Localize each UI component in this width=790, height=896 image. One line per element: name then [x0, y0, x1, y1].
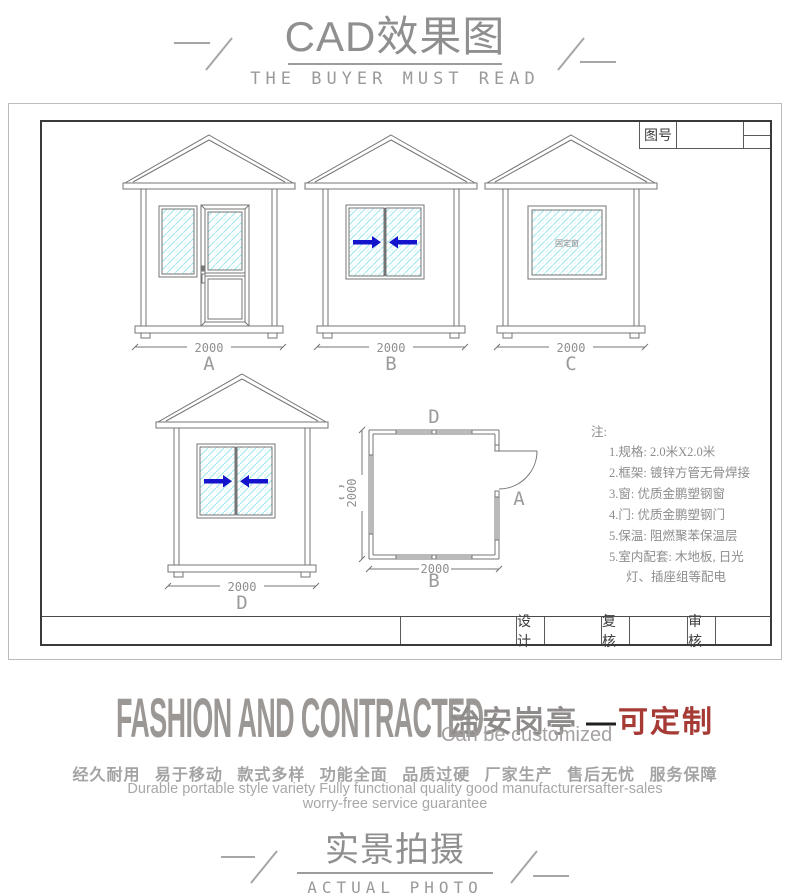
note-item: 4.门: 优质金鹏塑钢门: [589, 505, 769, 526]
title-block: 设计 复核 审核: [42, 616, 770, 644]
drawing-number-value-cell: [677, 122, 744, 148]
plan-left-label: C: [339, 482, 346, 504]
fixed-window-label: 固定窗: [555, 238, 579, 248]
right-slash-decor-icon: [507, 843, 569, 887]
features-en-line1: Durable portable style variety Fully fun…: [0, 781, 790, 797]
header-title: CAD效果图: [285, 15, 506, 59]
footer-banner: 实景拍摄 ACTUAL PHOTO: [0, 834, 790, 896]
plan-right-label: A: [513, 488, 525, 510]
left-slash-decor-icon: [174, 30, 236, 74]
promo-headline-wrap: FASHION AND CONTRACTED: [116, 692, 452, 742]
header-rule: [288, 63, 502, 65]
drawing-number-side-cells: [744, 122, 770, 148]
customizable-text: 可定制: [618, 706, 714, 739]
features-en-line2: worry-free service guarantee: [0, 796, 790, 812]
header-subtitle: THE BUYER MUST READ: [250, 69, 539, 89]
elevation-c-label: C: [565, 353, 576, 371]
footer-title-block: 实景拍摄 ACTUAL PHOTO: [297, 833, 493, 896]
title-block-audit-value: [716, 617, 770, 644]
note-item: 3.窗: 优质金鹏塑钢窗: [589, 484, 769, 505]
title-block-empty-cell: [42, 617, 401, 644]
promo-headline-en: FASHION AND CONTRACTED: [116, 692, 304, 747]
header-banner: CAD效果图 THE BUYER MUST READ: [0, 6, 790, 98]
note-item: 5.室内配套: 木地板, 日光: [589, 547, 769, 568]
title-block-review-value: [630, 617, 688, 644]
title-block-design-label: 设计: [517, 617, 545, 644]
title-block-review-label: 复核: [602, 617, 630, 644]
elevation-a-lines: [123, 135, 295, 350]
floor-plan-lines: [359, 427, 537, 572]
footer-title: 实景拍摄: [325, 833, 465, 869]
note-item: 1.规格: 2.0米X2.0米: [589, 442, 769, 463]
elevation-c-drawing: 固定窗 2000 C: [481, 129, 661, 371]
notes-heading: 注:: [589, 422, 769, 442]
left-slash-decor-icon: [221, 843, 283, 887]
notes: 注: 1.规格: 2.0米X2.0米 2.框架: 镀锌方管无骨焊接 3.窗: 优…: [589, 422, 769, 586]
cad-sheet: 图号: [8, 103, 782, 660]
note-item: 5.保温: 阻燃聚苯保温层: [589, 526, 769, 547]
title-block-empty-cell: [401, 617, 517, 644]
floor-plan-drawing: 2000 2000 D C B A: [339, 397, 559, 597]
plan-top-label: D: [428, 406, 439, 428]
elevation-a-drawing: 2000 A: [119, 129, 299, 371]
right-slash-decor-icon: [554, 30, 616, 74]
footer-rule: [297, 872, 493, 874]
elevation-b-drawing: 2000 B: [301, 129, 481, 371]
note-item-continuation: 灯、插座组等配电: [589, 568, 769, 586]
elevation-d-label: D: [236, 592, 247, 610]
title-block-design-value: [545, 617, 602, 644]
elevation-b-label: B: [385, 353, 396, 371]
elevation-d-drawing: 2000 D: [152, 368, 332, 610]
customizable-text-en: Can be customized: [441, 724, 612, 747]
header-title-block: CAD效果图 THE BUYER MUST READ: [250, 15, 539, 88]
title-block-audit-label: 审核: [688, 617, 716, 644]
note-item: 2.框架: 镀锌方管无骨焊接: [589, 463, 769, 484]
plan-bottom-label: B: [428, 570, 439, 592]
drawing-frame: 图号: [40, 120, 772, 646]
footer-subtitle: ACTUAL PHOTO: [307, 878, 483, 896]
plan-height-dimension: 2000: [345, 479, 359, 508]
page: CAD效果图 THE BUYER MUST READ 图号: [0, 0, 790, 896]
